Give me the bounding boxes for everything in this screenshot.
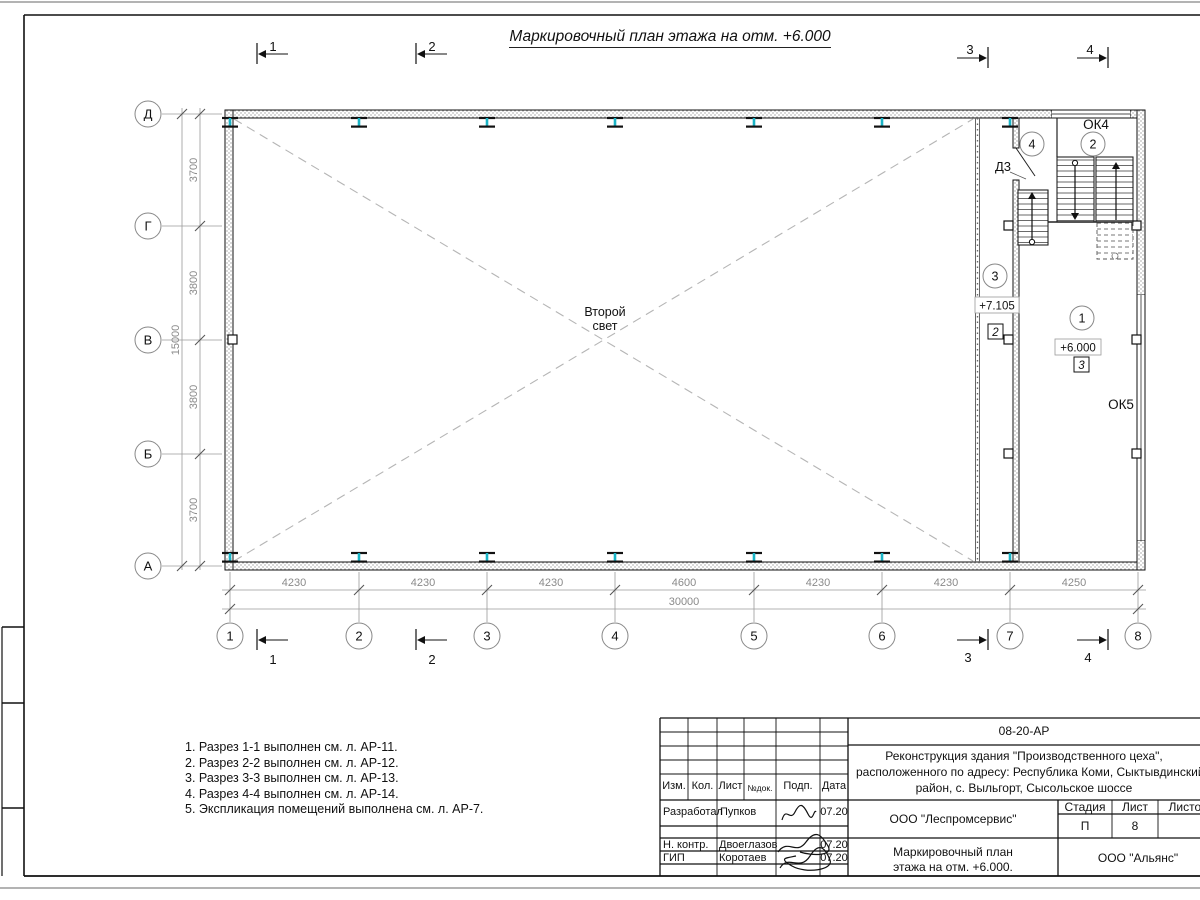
steel-column-icons: [222, 118, 1018, 562]
elevation-main-label: +6.000: [1060, 343, 1096, 355]
grid-col-6: 6: [878, 629, 885, 644]
col-header-data: Дата: [820, 780, 848, 792]
grid-col-3: 3: [483, 629, 490, 644]
col-header-kol: Кол.: [688, 780, 717, 792]
drawing-title-line1: Маркировочный план: [848, 845, 1058, 859]
floor-mark-2: 2: [991, 327, 999, 339]
date-razrabotal: 07.20: [820, 806, 848, 818]
void-label-line2: свет: [592, 319, 617, 333]
grid-row-b: Б: [144, 447, 153, 462]
section-mark-3-bottom: 3: [964, 650, 971, 665]
grid-row-g: Г: [144, 219, 151, 234]
dim-left-3: 3800: [188, 385, 200, 409]
dim-bottom-2: 4230: [411, 577, 435, 589]
left-dimensions: 3700 3800 3800 3700 15000 Д Г В Б А: [135, 101, 222, 579]
section-mark-1-top: 1: [269, 39, 276, 54]
page-title: Маркировочный план этажа на отм. +6.000: [480, 28, 860, 46]
note-3: 3. Разрез 3-3 выполнен см. л. АР-13.: [185, 771, 483, 787]
section-mark-1-bottom: 1: [269, 652, 276, 667]
name-pupkov: Пупков: [720, 806, 756, 818]
grid-col-4: 4: [611, 629, 618, 644]
left-edge-stamps: [2, 627, 24, 876]
project-name-line3: район, с. Выльгорт, Сысольское шоссе: [848, 781, 1200, 795]
date-gip: 07.20: [820, 852, 848, 864]
room-number-3: 3: [992, 270, 999, 284]
section-marks: [257, 43, 1108, 650]
glazed-partition: [976, 118, 980, 562]
dim-bottom-7: 4250: [1062, 577, 1086, 589]
dim-bottom-6: 4230: [934, 577, 958, 589]
role-gip: ГИП: [663, 852, 685, 864]
sheet-label: Лист: [1112, 800, 1158, 814]
dim-left-1: 3700: [188, 158, 200, 182]
grid-col-1: 1: [226, 629, 233, 644]
note-5: 5. Экспликация помещений выполнена см. л…: [185, 802, 483, 818]
dim-bottom-total: 30000: [669, 596, 700, 608]
void-label-line1: Второй: [584, 305, 625, 319]
section-mark-4-top: 4: [1086, 42, 1093, 57]
dim-left-2: 3800: [188, 271, 200, 295]
doc-number: 08-20-АР: [848, 724, 1200, 738]
bottom-dimensions: 4230 4230 4230 4600 4230 4230 4250 30000…: [217, 572, 1151, 649]
room-number-1: 1: [1079, 312, 1086, 326]
drawing-title-line2: этажа на отм. +6.000.: [848, 860, 1058, 874]
sheets-label: Листов: [1158, 800, 1200, 814]
grid-col-7: 7: [1006, 629, 1013, 644]
drawing-sheet: Второй свет Д3 ОК4 ОК5 1 2 3 4 +7.105 +6…: [0, 0, 1200, 900]
stage-value: П: [1058, 819, 1112, 833]
dim-bottom-1: 4230: [282, 577, 306, 589]
section-mark-2-top: 2: [428, 39, 435, 54]
elevation-upper-label: +7.105: [979, 301, 1015, 313]
contractor-name: ООО "Альянс": [1058, 851, 1200, 865]
notes-block: 1. Разрез 1-1 выполнен см. л. АР-11. 2. …: [185, 740, 483, 818]
void-cross-lines: [234, 119, 973, 561]
name-korotaev: Коротаев: [719, 852, 767, 864]
grid-row-v: В: [144, 333, 153, 348]
grid-col-8: 8: [1134, 629, 1141, 644]
window-ok5-label: ОК5: [1108, 397, 1134, 412]
column-grid-bubbles: 1 2 3 4 5 6 7 8: [217, 623, 1151, 649]
dim-bottom-5: 4230: [806, 577, 830, 589]
project-name-line1: Реконструкция здания "Производственного …: [848, 749, 1200, 763]
org-name: ООО "Леспромсервис": [848, 812, 1058, 826]
col-header-izm: Изм.: [660, 780, 688, 792]
window-ok4-label: ОК4: [1083, 117, 1109, 132]
hidden-stair-flight: [1097, 223, 1133, 259]
room-number-4: 4: [1029, 138, 1036, 152]
row-grid-bubbles: Д Г В Б А: [135, 101, 161, 579]
column-marker-squares: [228, 221, 1141, 458]
project-name-line2: расположенного по адресу: Республика Ком…: [856, 765, 1200, 779]
col-header-list: Лист: [717, 780, 744, 792]
dim-bottom-4: 4600: [672, 577, 696, 589]
grid-row-d: Д: [144, 107, 153, 122]
signature-pupkov: [782, 805, 816, 820]
section-mark-4-bottom: 4: [1084, 650, 1091, 665]
dim-left-total: 15000: [170, 325, 182, 356]
dim-left-4: 3700: [188, 498, 200, 522]
interior-wall: [1013, 118, 1019, 562]
sheet-value: 8: [1112, 819, 1158, 833]
grid-col-5: 5: [750, 629, 757, 644]
dim-bottom-3: 4230: [539, 577, 563, 589]
col-header-ndoc: №док.: [744, 783, 776, 793]
col-header-podp: Подп.: [776, 780, 820, 792]
section-mark-2-bottom: 2: [428, 652, 435, 667]
grid-row-a: А: [144, 559, 153, 574]
door-d3-label: Д3: [995, 159, 1011, 174]
stage-label: Стадия: [1058, 800, 1112, 814]
door-d3-leader-line: [1010, 172, 1026, 179]
room-number-2: 2: [1090, 138, 1097, 152]
role-nkontr: Н. контр.: [663, 839, 708, 851]
note-1: 1. Разрез 1-1 выполнен см. л. АР-11.: [185, 740, 483, 756]
role-razrabotal: Разработал: [663, 806, 723, 818]
note-2: 2. Разрез 2-2 выполнен см. л. АР-12.: [185, 756, 483, 772]
floor-mark-3: 3: [1078, 360, 1085, 372]
date-nkontr: 07.20: [820, 839, 848, 851]
note-4: 4. Разрез 4-4 выполнен см. л. АР-14.: [185, 787, 483, 803]
section-mark-3-top: 3: [966, 42, 973, 57]
window-ok5: [1137, 295, 1145, 540]
name-dvoeglazov: Двоеглазов: [719, 839, 777, 851]
grid-col-2: 2: [355, 629, 362, 644]
